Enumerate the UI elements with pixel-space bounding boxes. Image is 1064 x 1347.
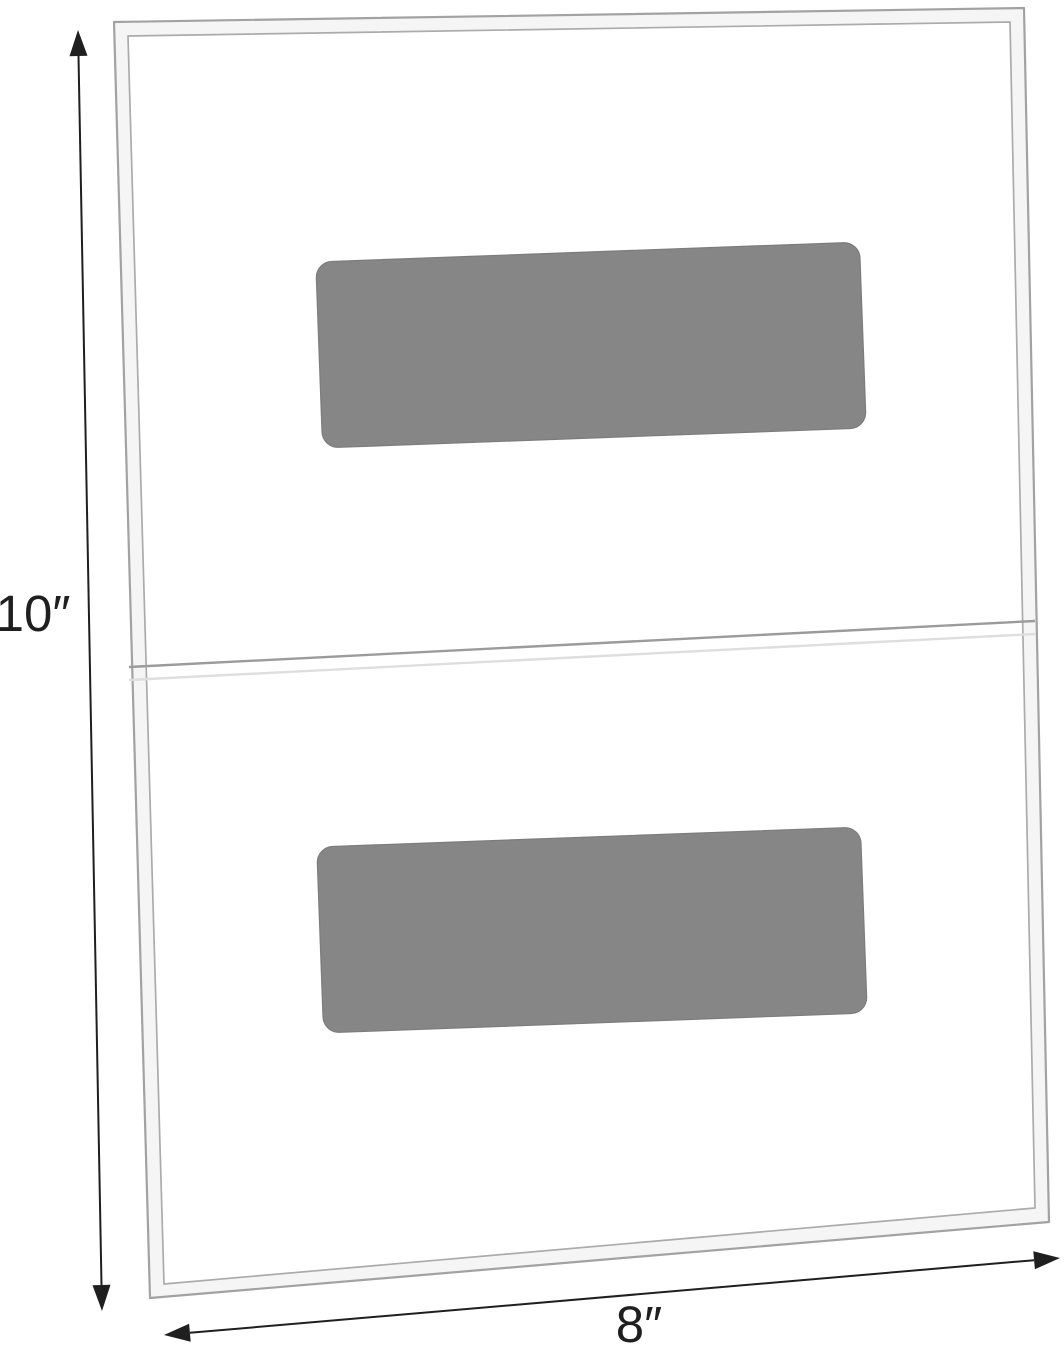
dimension-diagram-canvas: 10″ 8″ <box>0 0 1064 1347</box>
adhesive-pad-bottom <box>317 827 867 1033</box>
acrylic-panel <box>114 8 1049 1298</box>
panel-inner-edge <box>128 22 1035 1284</box>
product-dimension-image: 10″ 8″ <box>0 0 1064 1347</box>
height-label: 10″ <box>0 585 70 642</box>
arrowhead-down-icon <box>93 1285 111 1311</box>
arrowhead-left-icon <box>164 1324 191 1342</box>
arrowhead-right-icon <box>1033 1251 1060 1269</box>
arrowhead-up-icon <box>70 30 88 56</box>
height-dimension: 10″ <box>0 30 111 1311</box>
height-dimension-line <box>79 56 102 1285</box>
width-label: 8″ <box>616 1296 662 1347</box>
adhesive-pad-top <box>316 242 866 448</box>
